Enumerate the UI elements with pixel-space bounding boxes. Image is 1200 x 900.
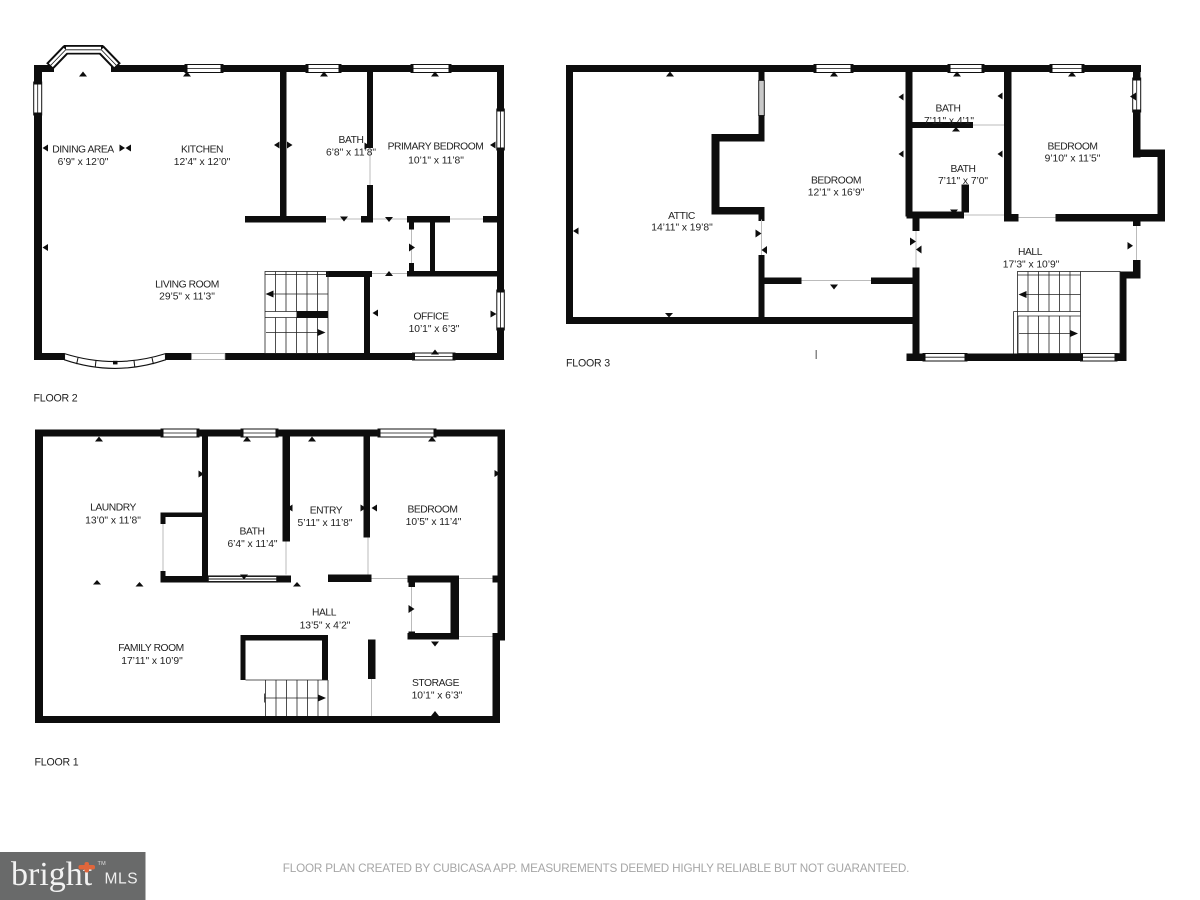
svg-text:FLOOR PLAN CREATED BY CUBICASA: FLOOR PLAN CREATED BY CUBICASA APP. MEAS…: [283, 862, 909, 875]
svg-text:29’5" x 11’3": 29’5" x 11’3": [159, 292, 215, 303]
svg-text:12’1" x 16’9": 12’1" x 16’9": [808, 188, 865, 199]
svg-text:17’11" x 10’9": 17’11" x 10’9": [121, 656, 183, 667]
svg-text:BATH: BATH: [936, 104, 961, 115]
svg-text:13’5" x 4’2": 13’5" x 4’2": [300, 621, 351, 632]
svg-text:7’11" x 7’0": 7’11" x 7’0": [938, 176, 988, 187]
svg-text:TM: TM: [98, 861, 107, 867]
svg-text:FAMILY ROOM: FAMILY ROOM: [118, 643, 184, 654]
svg-text:ATTIC: ATTIC: [668, 211, 696, 222]
svg-text:KITCHEN: KITCHEN: [181, 145, 223, 156]
svg-text:7’11" x 4’1": 7’11" x 4’1": [924, 116, 974, 127]
svg-text:BEDROOM: BEDROOM: [1047, 142, 1097, 153]
svg-text:13’0" x 11’8": 13’0" x 11’8": [85, 516, 141, 527]
svg-text:17’3" x 10’9": 17’3" x 10’9": [1003, 260, 1060, 271]
svg-text:FLOOR 2: FLOOR 2: [34, 393, 78, 405]
svg-text:PRIMARY BEDROOM: PRIMARY BEDROOM: [388, 142, 484, 153]
svg-text:6’8" x 11’8": 6’8" x 11’8": [326, 148, 376, 159]
svg-text:14’11" x 19’8": 14’11" x 19’8": [651, 223, 713, 234]
svg-text:BEDROOM: BEDROOM: [407, 505, 457, 516]
svg-text:10’5" x 11’4": 10’5" x 11’4": [406, 517, 462, 528]
svg-text:LIVING ROOM: LIVING ROOM: [155, 280, 219, 291]
svg-text:6’4" x 11’4": 6’4" x 11’4": [227, 539, 277, 550]
svg-text:FLOOR 1: FLOOR 1: [35, 757, 79, 769]
svg-text:6’9" x 12’0": 6’9" x 12’0": [58, 157, 109, 168]
svg-text:BEDROOM: BEDROOM: [811, 176, 861, 187]
svg-text:bright: bright: [11, 856, 93, 893]
svg-text:12’4" x 12’0": 12’4" x 12’0": [174, 157, 231, 168]
svg-text:ENTRY: ENTRY: [310, 506, 343, 517]
svg-text:10’1" x 6’3": 10’1" x 6’3": [409, 324, 460, 335]
svg-text:DINING AREA: DINING AREA: [52, 145, 114, 156]
svg-text:HALL: HALL: [1018, 247, 1043, 258]
svg-text:LAUNDRY: LAUNDRY: [90, 503, 136, 514]
svg-text:10’1" x 6’3": 10’1" x 6’3": [412, 691, 463, 702]
svg-text:9’10" x 11’5": 9’10" x 11’5": [1045, 154, 1101, 165]
svg-text:HALL: HALL: [312, 608, 337, 619]
svg-text:OFFICE: OFFICE: [413, 312, 449, 323]
svg-text:STORAGE: STORAGE: [412, 678, 460, 689]
svg-text:BATH: BATH: [240, 527, 265, 538]
svg-text:FLOOR 3: FLOOR 3: [566, 358, 610, 370]
svg-text:5’11" x 11’8": 5’11" x 11’8": [298, 518, 353, 529]
svg-text:BATH: BATH: [339, 135, 364, 146]
svg-text:10’1" x 11’8": 10’1" x 11’8": [408, 156, 464, 167]
svg-text:BATH: BATH: [951, 164, 976, 175]
svg-text:MLS: MLS: [105, 871, 139, 888]
